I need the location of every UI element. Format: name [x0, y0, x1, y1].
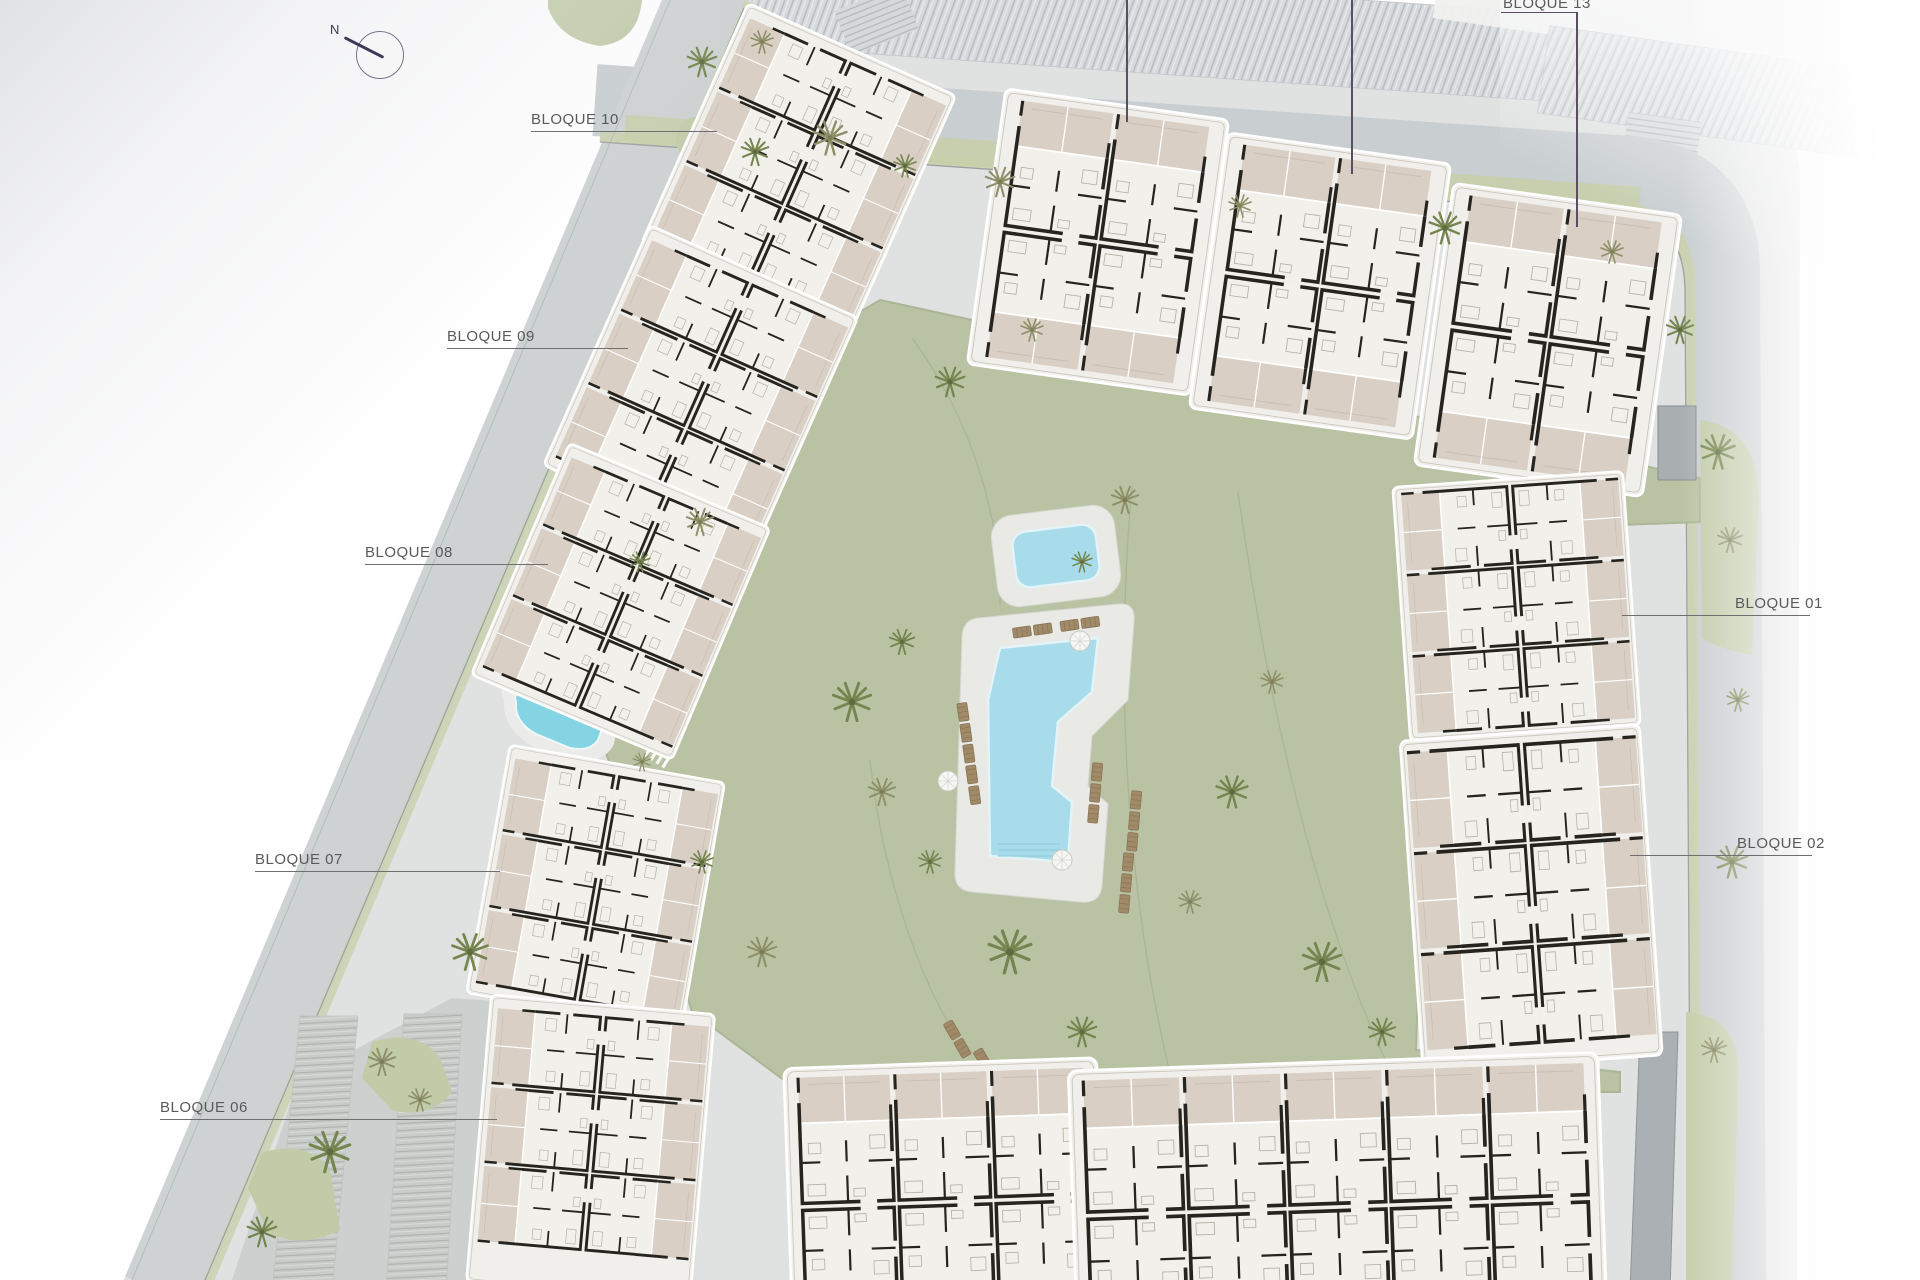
label-bloque-06: BLOQUE 06 — [160, 1100, 248, 1115]
compass-north-label: N — [330, 23, 340, 36]
leader-line-bloque-10 — [531, 131, 717, 132]
building-south-a — [784, 1058, 1107, 1280]
building-bloque-13 — [1414, 183, 1682, 497]
leader-line-bloque-13-v — [1576, 12, 1578, 227]
label-bloque-08: BLOQUE 08 — [365, 545, 453, 560]
label-bloque-13: BLOQUE 13 — [1503, 0, 1591, 11]
leader-line-bloque-02 — [1630, 855, 1812, 856]
leader-line-bloque-08 — [365, 564, 548, 565]
leader-line-bloque-09 — [447, 348, 628, 349]
building-south-b — [1068, 1052, 1608, 1280]
building-bloque-12 — [1189, 133, 1451, 440]
label-bloque-09: BLOQUE 09 — [447, 329, 535, 344]
label-bloque-01: BLOQUE 01 — [1735, 596, 1823, 611]
label-bloque-02: BLOQUE 02 — [1737, 836, 1825, 851]
leader-line-bloque-01 — [1622, 615, 1810, 616]
leader-line-bloque-13-h — [1501, 12, 1578, 13]
label-bloque-07: BLOQUE 07 — [255, 852, 343, 867]
building-bloque-01 — [1392, 471, 1640, 741]
leader-line-bloque-11 — [1126, 0, 1128, 122]
building-bloque-06 — [466, 995, 715, 1280]
building-bloque-02 — [1400, 724, 1663, 1071]
site-plan-canvas — [0, 0, 1920, 1280]
leader-line-bloque-07 — [255, 871, 500, 872]
leader-line-bloque-06 — [160, 1119, 497, 1120]
building-bloque-07 — [466, 745, 725, 1031]
small-pool — [989, 503, 1123, 609]
label-bloque-10: BLOQUE 10 — [531, 112, 619, 127]
building-bloque-11 — [967, 89, 1229, 396]
leader-line-bloque-12 — [1351, 0, 1353, 174]
site-plan: N BLOQUE 10 BLOQUE 09 BLOQUE 08 BLOQUE 0… — [0, 0, 1920, 1280]
